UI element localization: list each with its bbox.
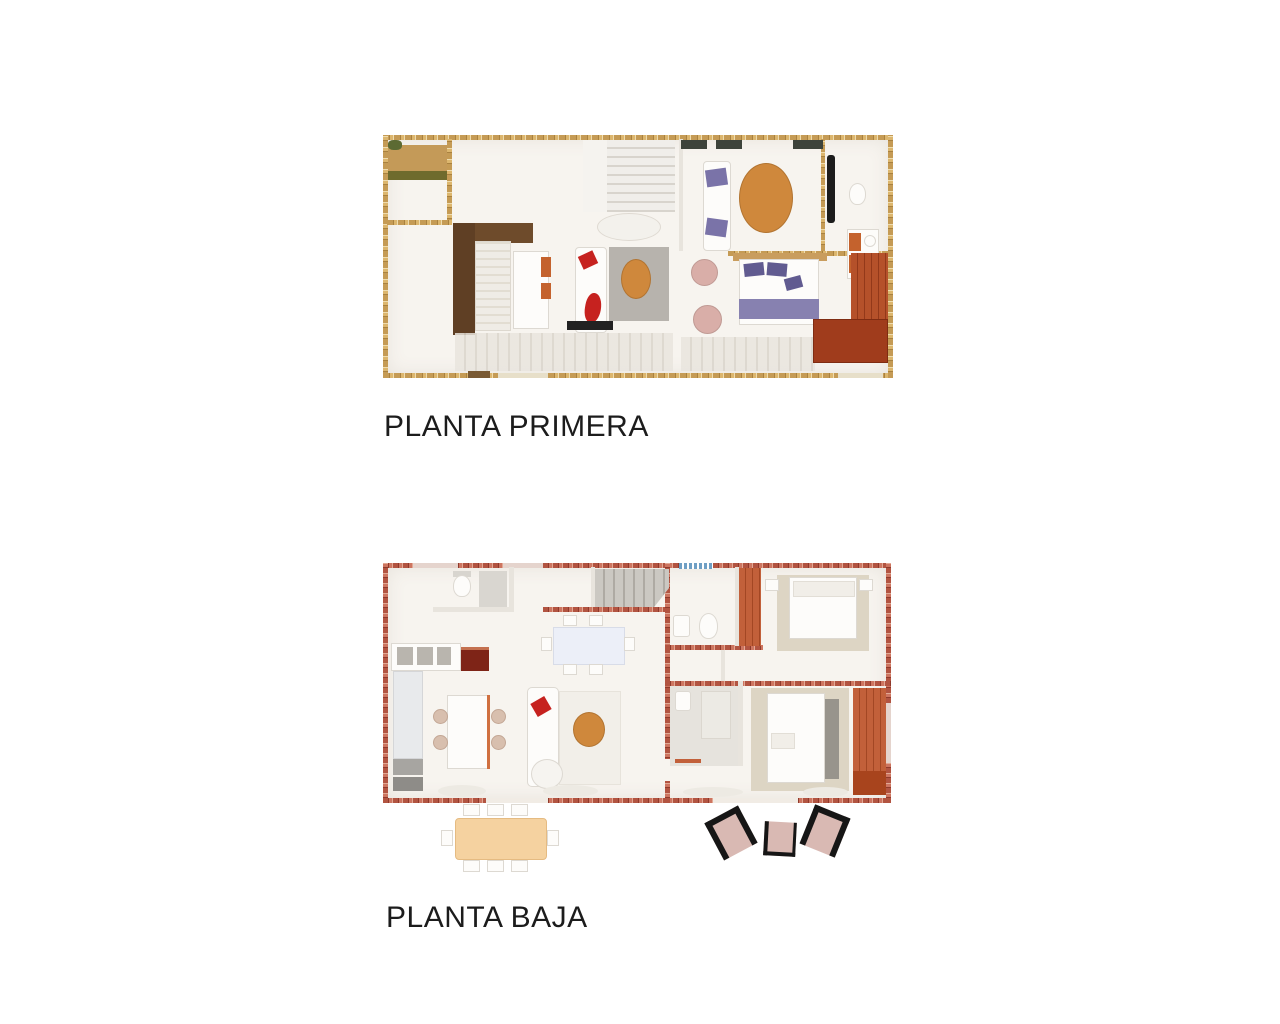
toilet (453, 575, 471, 597)
plant-icon (388, 140, 402, 150)
dining-chair (589, 615, 603, 626)
sofa-cushion-purple (705, 168, 728, 188)
window (886, 703, 891, 763)
outdoor-chair (487, 860, 504, 872)
shelf-accent (541, 283, 551, 299)
shelf-accent (541, 257, 551, 277)
wardrobe-base (853, 771, 886, 795)
wall-wc-vertical (509, 567, 514, 609)
sink (864, 235, 876, 247)
cabinet-open (417, 647, 433, 665)
shower-tray (701, 691, 731, 739)
terrace-wall-vertical (447, 139, 452, 225)
round-table (739, 163, 793, 233)
door-accent (468, 371, 490, 378)
pillow (743, 262, 764, 277)
outdoor-dining-table (455, 818, 547, 860)
coffee-table (621, 259, 651, 299)
outdoor-armchair (704, 806, 757, 861)
terrace-hedge (388, 171, 448, 180)
outdoor-armchair (800, 804, 851, 857)
outdoor-chair (511, 804, 528, 816)
wardrobe (739, 568, 761, 646)
pillow (766, 262, 787, 277)
wall-right (888, 135, 893, 378)
vanity-drawer (849, 233, 861, 251)
window (838, 373, 883, 378)
outdoor-armchair (763, 821, 797, 857)
pillow (793, 581, 855, 597)
outdoor-chair (463, 860, 480, 872)
wall-center-divider (679, 139, 683, 251)
kitchen-appliance (393, 759, 423, 775)
outdoor-chair (463, 804, 480, 816)
sink (673, 615, 690, 637)
outdoor-chair (441, 830, 453, 846)
pouf (693, 305, 722, 334)
pillow (771, 733, 795, 749)
pouf (531, 759, 563, 789)
window (413, 563, 458, 568)
closet-wall-vertical (453, 223, 475, 335)
staircase (595, 569, 669, 607)
island-edge (487, 695, 490, 769)
floor-plan-first (383, 135, 893, 378)
sofa-cushion-purple (705, 218, 728, 238)
dining-table (553, 627, 625, 665)
wall-under-stairs (543, 607, 670, 612)
nightstand (765, 579, 779, 591)
stair-landing (583, 140, 607, 212)
wall-wc-horizontal (433, 607, 514, 612)
bed-headboard (825, 699, 839, 779)
open-wardrobe (475, 241, 511, 331)
glass-door (713, 798, 798, 803)
bed-blanket (739, 299, 819, 319)
window (498, 373, 548, 378)
wall-stairs-left (591, 567, 595, 609)
cabinet-red (461, 647, 489, 671)
wall-bottom (383, 373, 893, 378)
cabinet-open (397, 647, 413, 665)
floor-plan-ground (383, 563, 891, 803)
staircase (607, 140, 675, 212)
wall-hall-vertical (721, 650, 725, 682)
skylight-slot (793, 140, 823, 149)
shower-tray (479, 571, 507, 607)
caption-ground-floor: PLANTA BAJA (386, 901, 588, 935)
stool (491, 709, 506, 724)
dining-chair (589, 664, 603, 675)
curtain (543, 785, 598, 797)
curtain (803, 787, 848, 797)
mirror (827, 155, 835, 223)
caption-first-floor: PLANTA PRIMERA (384, 410, 649, 444)
curtain (683, 787, 743, 797)
floor-runner (567, 321, 613, 330)
dining-chair (624, 637, 635, 651)
window-blue (679, 563, 713, 569)
kitchen-island (447, 695, 489, 769)
outdoor-chair (511, 860, 528, 872)
wall-left (383, 563, 388, 803)
dining-chair (563, 664, 577, 675)
sink (675, 691, 691, 711)
dining-chair (563, 615, 577, 626)
cabinet-open (437, 647, 451, 665)
skylight-slot (716, 140, 742, 149)
toilet (699, 613, 718, 639)
stool (433, 709, 448, 724)
kitchen-appliance (393, 777, 423, 791)
coffee-table (573, 712, 605, 747)
toilet (849, 183, 866, 205)
outdoor-chair (547, 830, 559, 846)
curtain (438, 785, 486, 797)
wood-decking (681, 337, 815, 371)
nightstand (859, 579, 873, 591)
wall-bath-divider (821, 139, 825, 251)
hall-table (597, 213, 661, 241)
glass-door (486, 798, 548, 803)
wardrobe-bench (813, 319, 888, 363)
wall-top (383, 563, 891, 568)
dining-chair (541, 637, 552, 651)
wall-bottom (383, 798, 891, 803)
wall-bath2-vertical (738, 681, 743, 766)
stool (491, 735, 506, 750)
skylight-slot (681, 140, 707, 149)
page-canvas: PLANTA PRIMERA (0, 0, 1280, 1024)
pouf (691, 259, 718, 286)
stool (433, 735, 448, 750)
wood-decking (455, 333, 673, 371)
towel-rail (675, 759, 701, 763)
kitchen-counter (393, 671, 423, 759)
terrace-wall-horizontal (387, 220, 452, 225)
outdoor-chair (487, 804, 504, 816)
